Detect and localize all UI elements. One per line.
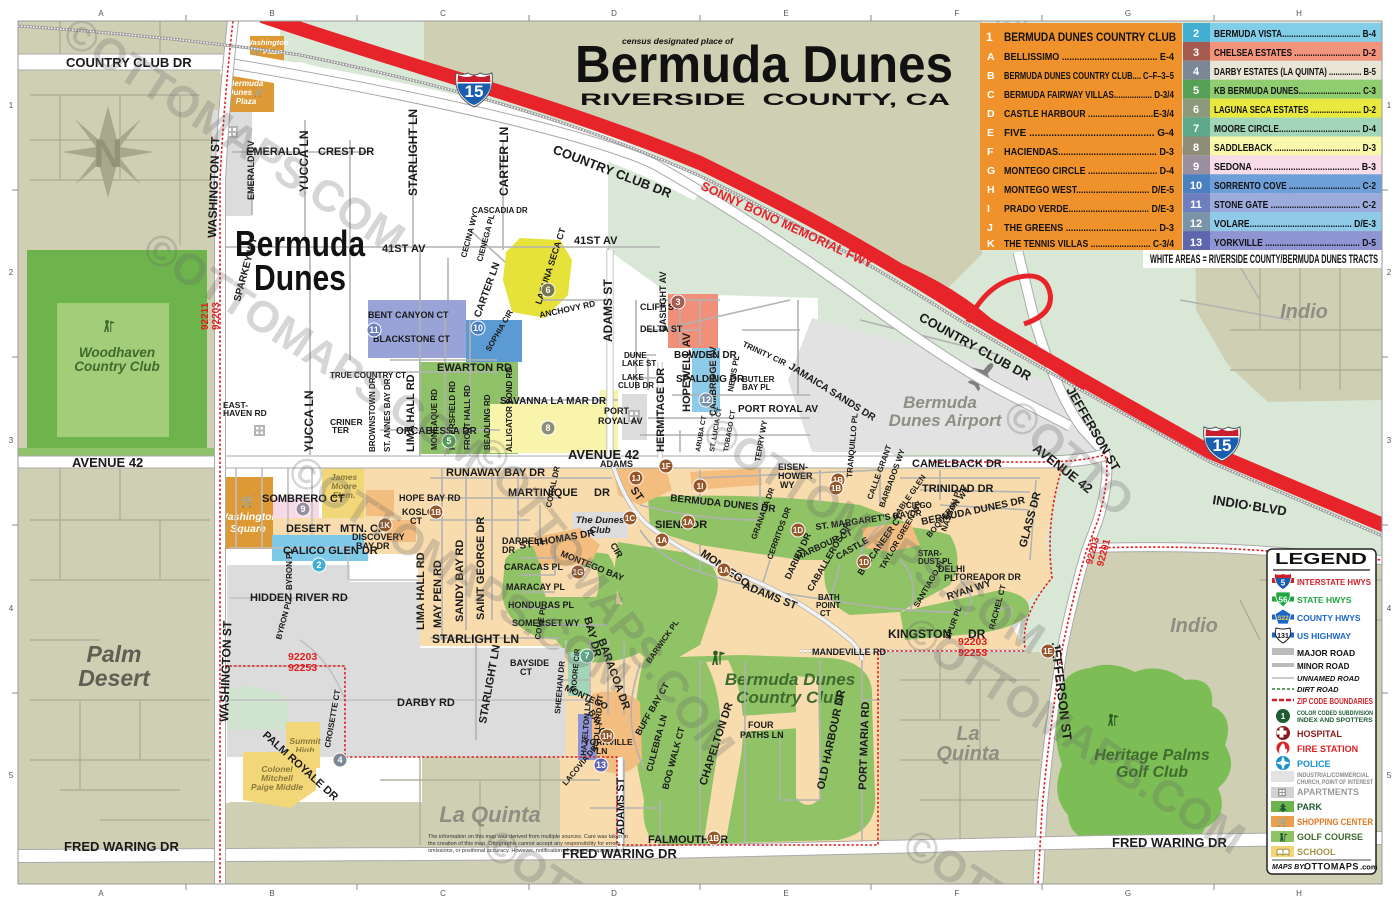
svg-text:15: 15 (465, 82, 484, 101)
svg-text:3: 3 (1193, 47, 1199, 59)
svg-text:9: 9 (300, 504, 305, 514)
svg-text:3: 3 (675, 297, 680, 307)
svg-text:UNNAMED ROAD: UNNAMED ROAD (1297, 674, 1360, 683)
svg-text:FIVE ......................: FIVE ...................................… (1004, 127, 1174, 139)
svg-text:HAVEN RD: HAVEN RD (223, 408, 267, 418)
svg-text:SEDONA ......................: SEDONA .................................… (1214, 161, 1376, 173)
svg-text:B: B (987, 70, 995, 82)
svg-text:US HIGHWAY: US HIGHWAY (1297, 631, 1351, 641)
svg-text:HACIENDAS.....................: HACIENDAS...............................… (1004, 146, 1174, 158)
svg-text:Indio: Indio (1280, 301, 1328, 323)
svg-text:Plaza: Plaza (236, 97, 257, 106)
svg-text:La Quinta: La Quinta (439, 802, 540, 827)
svg-text:1B: 1B (431, 508, 441, 517)
svg-text:Palm: Palm (87, 641, 142, 667)
svg-text:1A: 1A (683, 518, 693, 527)
svg-text:STATE HWYS: STATE HWYS (1297, 595, 1352, 605)
svg-text:LAGUNA SECA ESTATES ..........: LAGUNA SECA ESTATES ....................… (1214, 104, 1376, 116)
svg-text:VOLARE........................: VOLARE..................................… (1214, 218, 1376, 230)
svg-text:BERMUDA VISTA.................: BERMUDA VISTA...........................… (1214, 28, 1376, 40)
svg-text:WHITE AREAS = RIVERSIDE COUNTY: WHITE AREAS = RIVERSIDE COUNTY/BERMUDA D… (1150, 254, 1378, 266)
svg-text:5: 5 (9, 771, 14, 780)
svg-text:4: 4 (1193, 66, 1200, 78)
svg-text:A: A (98, 9, 104, 18)
svg-text:G: G (987, 165, 995, 177)
svg-text:5: 5 (1193, 85, 1199, 97)
svg-text:GOLF COURSE: GOLF COURSE (1297, 832, 1363, 842)
svg-text:RIVERSIDE COUNTY, CA: RIVERSIDE COUNTY, CA (580, 90, 950, 109)
svg-text:SHOPPING CENTER: SHOPPING CENTER (1297, 817, 1373, 827)
svg-text:BLACKSTONE CT: BLACKSTONE CT (373, 334, 450, 344)
svg-text:INDEX AND SPOTTERS: INDEX AND SPOTTERS (1297, 717, 1373, 724)
svg-text:13: 13 (596, 760, 606, 770)
svg-text:1A: 1A (719, 566, 729, 575)
svg-text:C: C (440, 9, 446, 18)
svg-text:HERMITAGE DR: HERMITAGE DR (655, 368, 667, 452)
svg-text:56: 56 (1279, 596, 1288, 605)
svg-text:6: 6 (1193, 104, 1199, 116)
svg-text:🛒: 🛒 (241, 494, 256, 508)
svg-text:3: 3 (1387, 436, 1392, 445)
svg-text:1: 1 (986, 30, 993, 44)
svg-text:4: 4 (9, 604, 14, 613)
svg-text:G: G (1125, 9, 1131, 18)
svg-text:7: 7 (1193, 123, 1199, 135)
svg-text:Country Club: Country Club (74, 359, 160, 374)
svg-text:1C: 1C (625, 514, 635, 523)
svg-text:2: 2 (9, 268, 14, 277)
svg-text:Dunes 🛒: Dunes 🛒 (228, 87, 267, 97)
svg-text:B: B (269, 889, 274, 898)
svg-text:H: H (1296, 9, 1302, 18)
svg-text:FOUR: FOUR (748, 720, 774, 730)
svg-text:ROYAL AV: ROYAL AV (598, 416, 643, 426)
svg-text:CASTLE HARBOUR ...............: CASTLE HARBOUR .........................… (1004, 108, 1174, 120)
svg-text:1E: 1E (1043, 647, 1053, 656)
svg-text:INTERSTATE HWYS: INTERSTATE HWYS (1297, 577, 1371, 587)
svg-text:GASLIGHT AV: GASLIGHT AV (658, 272, 668, 333)
svg-text:F: F (987, 146, 994, 158)
svg-text:PATHS LN: PATHS LN (740, 730, 784, 740)
svg-text:KB BERMUDA DUNES..............: KB BERMUDA DUNES........................… (1214, 85, 1376, 97)
svg-text:PRADO VERDE...................: PRADO VERDE.............................… (1004, 203, 1174, 215)
svg-text:MONTEGO CIRCLE ...............: MONTEGO CIRCLE .........................… (1004, 165, 1174, 177)
svg-text:A: A (987, 51, 995, 63)
svg-text:I: I (987, 203, 990, 215)
svg-text:3: 3 (9, 436, 14, 445)
svg-text:C: C (440, 889, 446, 898)
svg-text:SCHOOL: SCHOOL (1297, 847, 1336, 857)
svg-text:STARLIGHT LN: STARLIGHT LN (406, 109, 420, 196)
svg-text:H: H (987, 184, 995, 196)
svg-text:AVENUE 42: AVENUE 42 (72, 455, 143, 470)
svg-text:YUCCA LN: YUCCA LN (302, 390, 316, 452)
svg-text:12: 12 (701, 395, 711, 405)
svg-text:ZIP CODE BOUNDARIES: ZIP CODE BOUNDARIES (1297, 696, 1373, 706)
svg-text:POLICE: POLICE (1297, 759, 1331, 769)
svg-text:SORRENTO COVE ................: SORRENTO COVE ..........................… (1214, 180, 1376, 192)
svg-text:LAKE ST: LAKE ST (622, 359, 656, 368)
svg-text:1: 1 (1281, 712, 1286, 721)
svg-text:A: A (98, 889, 104, 898)
svg-text:MINOR ROAD: MINOR ROAD (1297, 662, 1350, 671)
svg-text:APARTMENTS: APARTMENTS (1297, 787, 1359, 797)
svg-text:CLUB DR: CLUB DR (618, 381, 654, 390)
svg-text:1B: 1B (709, 834, 719, 843)
svg-text:TER: TER (332, 425, 349, 435)
svg-text:PORT: PORT (604, 406, 630, 416)
svg-text:BERMUDA DUNES COUNTRY CLUB....: BERMUDA DUNES COUNTRY CLUB.... C–F–3–5 (1004, 70, 1174, 82)
svg-text:6: 6 (545, 285, 550, 295)
svg-text:C: C (987, 89, 995, 101)
svg-text:DIRT ROAD: DIRT ROAD (1297, 685, 1339, 694)
svg-text:HOPEWELL AV: HOPEWELL AV (681, 332, 693, 412)
svg-text:E: E (783, 9, 788, 18)
svg-text:ADAMS ST: ADAMS ST (601, 279, 615, 342)
svg-text:BENT CANYON CT: BENT CANYON CT (368, 310, 449, 320)
svg-text:Washington: Washington (246, 38, 289, 47)
svg-text:CARTER LN: CARTER LN (497, 127, 511, 196)
svg-text:LEGEND: LEGEND (1275, 551, 1367, 568)
svg-text:9: 9 (1193, 161, 1199, 173)
svg-text:E: E (987, 127, 994, 139)
svg-text:D: D (987, 108, 995, 120)
svg-text:D: D (611, 9, 617, 18)
svg-text:MOORE CIRCLE..................: MOORE CIRCLE............................… (1214, 123, 1376, 135)
svg-text:N: N (94, 132, 123, 176)
svg-text:10: 10 (473, 323, 483, 333)
svg-text:STARLIGHT LN: STARLIGHT LN (432, 632, 519, 646)
svg-text:41ST AV: 41ST AV (574, 235, 618, 247)
svg-text:DESERT: DESERT (286, 523, 331, 535)
svg-text:F: F (955, 889, 960, 898)
svg-text:OTTOMAPS: OTTOMAPS (1304, 862, 1359, 872)
svg-text:Bermuda Dunes: Bermuda Dunes (575, 36, 953, 94)
svg-text:THE GREENS ...................: THE GREENS .............................… (1004, 222, 1174, 234)
svg-text:1A: 1A (657, 536, 667, 545)
svg-text:8: 8 (545, 423, 550, 433)
svg-text:E: E (783, 889, 788, 898)
svg-text:Dunes Airport: Dunes Airport (889, 411, 1003, 430)
svg-text:STONE GATE ...................: STONE GATE .............................… (1214, 199, 1376, 211)
svg-text:BERMUDA FAIRWAY VILLAS........: BERMUDA FAIRWAY VILLAS................. … (1004, 89, 1174, 101)
svg-text:2: 2 (1387, 268, 1392, 277)
svg-text:ADAMS ST: ADAMS ST (615, 777, 627, 835)
svg-text:HOPE BAY RD: HOPE BAY RD (399, 493, 461, 503)
svg-text:COUNTY HWYS: COUNTY HWYS (1297, 613, 1361, 623)
svg-text:FIRE STATION: FIRE STATION (1297, 744, 1358, 754)
svg-text:1F: 1F (661, 462, 670, 471)
svg-text:CT: CT (520, 667, 532, 677)
svg-text:1: 1 (1387, 101, 1392, 110)
svg-text:HOSPITAL: HOSPITAL (1297, 729, 1342, 739)
svg-text:2: 2 (1193, 28, 1199, 40)
svg-text:YORKVILLE ....................: YORKVILLE ..............................… (1214, 237, 1376, 249)
svg-text:Bermuda: Bermuda (903, 393, 977, 412)
svg-text:DR: DR (502, 545, 515, 555)
svg-text:S22: S22 (1277, 615, 1289, 622)
svg-text:Woodhaven: Woodhaven (79, 345, 155, 360)
svg-text:BOWDEN DR: BOWDEN DR (674, 350, 738, 361)
svg-text:11: 11 (369, 325, 379, 335)
svg-text:Washington: Washington (218, 511, 278, 523)
svg-text:2: 2 (316, 560, 321, 570)
svg-text:BELLISSIMO ...................: BELLISSIMO .............................… (1004, 51, 1174, 63)
svg-text:MAPS BY:: MAPS BY: (1272, 864, 1306, 871)
svg-text:DARBY ESTATES (LA QUINTA) ...: DARBY ESTATES (LA QUINTA) ..............… (1214, 66, 1376, 78)
svg-text:INDUSTRIAL/COMMERCIAL: INDUSTRIAL/COMMERCIAL (1297, 772, 1369, 779)
svg-text:H: H (1296, 889, 1302, 898)
svg-text:MONTEGO WEST..................: MONTEGO WEST............................… (1004, 184, 1174, 196)
svg-text:1J: 1J (632, 474, 641, 483)
svg-text:PARK: PARK (1297, 802, 1322, 812)
svg-text:BAY PL: BAY PL (742, 383, 771, 392)
svg-text:La: La (956, 723, 979, 745)
svg-text:5: 5 (1281, 579, 1286, 588)
svg-text:D: D (611, 889, 617, 898)
svg-text:Paige Middle: Paige Middle (251, 782, 303, 792)
svg-text:.com: .com (1360, 863, 1378, 872)
svg-text:15: 15 (1213, 436, 1232, 455)
svg-text:1H: 1H (602, 732, 612, 741)
svg-text:Country Club: Country Club (736, 688, 844, 707)
svg-text:BERMUDA DUNES COUNTRY CLUB: BERMUDA DUNES COUNTRY CLUB (1004, 30, 1176, 44)
svg-text:DR: DR (594, 487, 610, 499)
svg-text:10: 10 (1190, 180, 1202, 192)
svg-text:PORT ROYAL AV: PORT ROYAL AV (738, 404, 818, 415)
svg-text:Quinta: Quinta (936, 743, 999, 765)
svg-text:92253: 92253 (288, 662, 317, 674)
svg-text:1: 1 (9, 101, 14, 110)
svg-text:8: 8 (1193, 142, 1199, 154)
svg-text:SAVANNA LA MAR DR: SAVANNA LA MAR DR (500, 396, 607, 407)
svg-text:CHURCH, POINT OF INTEREST: CHURCH, POINT OF INTEREST (1297, 779, 1373, 786)
svg-text:CHELSEA ESTATES ..............: CHELSEA ESTATES ........................… (1214, 47, 1376, 59)
svg-text:5: 5 (1387, 771, 1392, 780)
svg-text:FRED WARING DR: FRED WARING DR (64, 839, 179, 854)
svg-text:F: F (955, 9, 960, 18)
svg-text:BYRON PL: BYRON PL (285, 549, 294, 590)
svg-text:ADAMS: ADAMS (600, 459, 633, 469)
svg-text:DARBY RD: DARBY RD (397, 697, 455, 709)
svg-text:4: 4 (337, 755, 342, 765)
svg-text:CREST DR: CREST DR (318, 146, 374, 158)
svg-text:B: B (269, 9, 274, 18)
svg-text:Indio: Indio (1170, 615, 1218, 637)
svg-text:MAJOR ROAD: MAJOR ROAD (1297, 648, 1355, 658)
svg-text:Desert: Desert (78, 665, 151, 691)
svg-text:1I: 1I (697, 482, 704, 491)
svg-text:HIDDEN RIVER RD: HIDDEN RIVER RD (250, 592, 348, 604)
svg-text:4: 4 (1387, 604, 1392, 613)
svg-text:SADDLEBACK ...................: SADDLEBACK .............................… (1214, 142, 1376, 154)
svg-text:EWARTON RD: EWARTON RD (437, 362, 512, 374)
svg-text:CASCADIA DR: CASCADIA DR (472, 206, 528, 215)
svg-text:MANDEVILLE RD: MANDEVILLE RD (812, 647, 887, 657)
svg-text:THE TENNIS VILLAS ............: THE TENNIS VILLAS ......................… (1004, 238, 1174, 250)
svg-text:131: 131 (1277, 633, 1289, 640)
svg-text:G: G (1125, 889, 1131, 898)
svg-text:J: J (987, 222, 993, 234)
svg-text:CAMELBACK DR: CAMELBACK DR (912, 458, 1002, 470)
svg-text:11: 11 (1190, 199, 1202, 211)
svg-text:🛒: 🛒 (1277, 816, 1288, 827)
svg-text:13: 13 (1190, 237, 1202, 249)
svg-text:K: K (987, 238, 995, 250)
svg-text:CT: CT (820, 609, 831, 618)
svg-text:COLOR CODED SUBDIVISION: COLOR CODED SUBDIVISION (1297, 710, 1373, 717)
svg-text:1D: 1D (793, 526, 803, 535)
svg-text:12: 12 (1190, 218, 1202, 230)
